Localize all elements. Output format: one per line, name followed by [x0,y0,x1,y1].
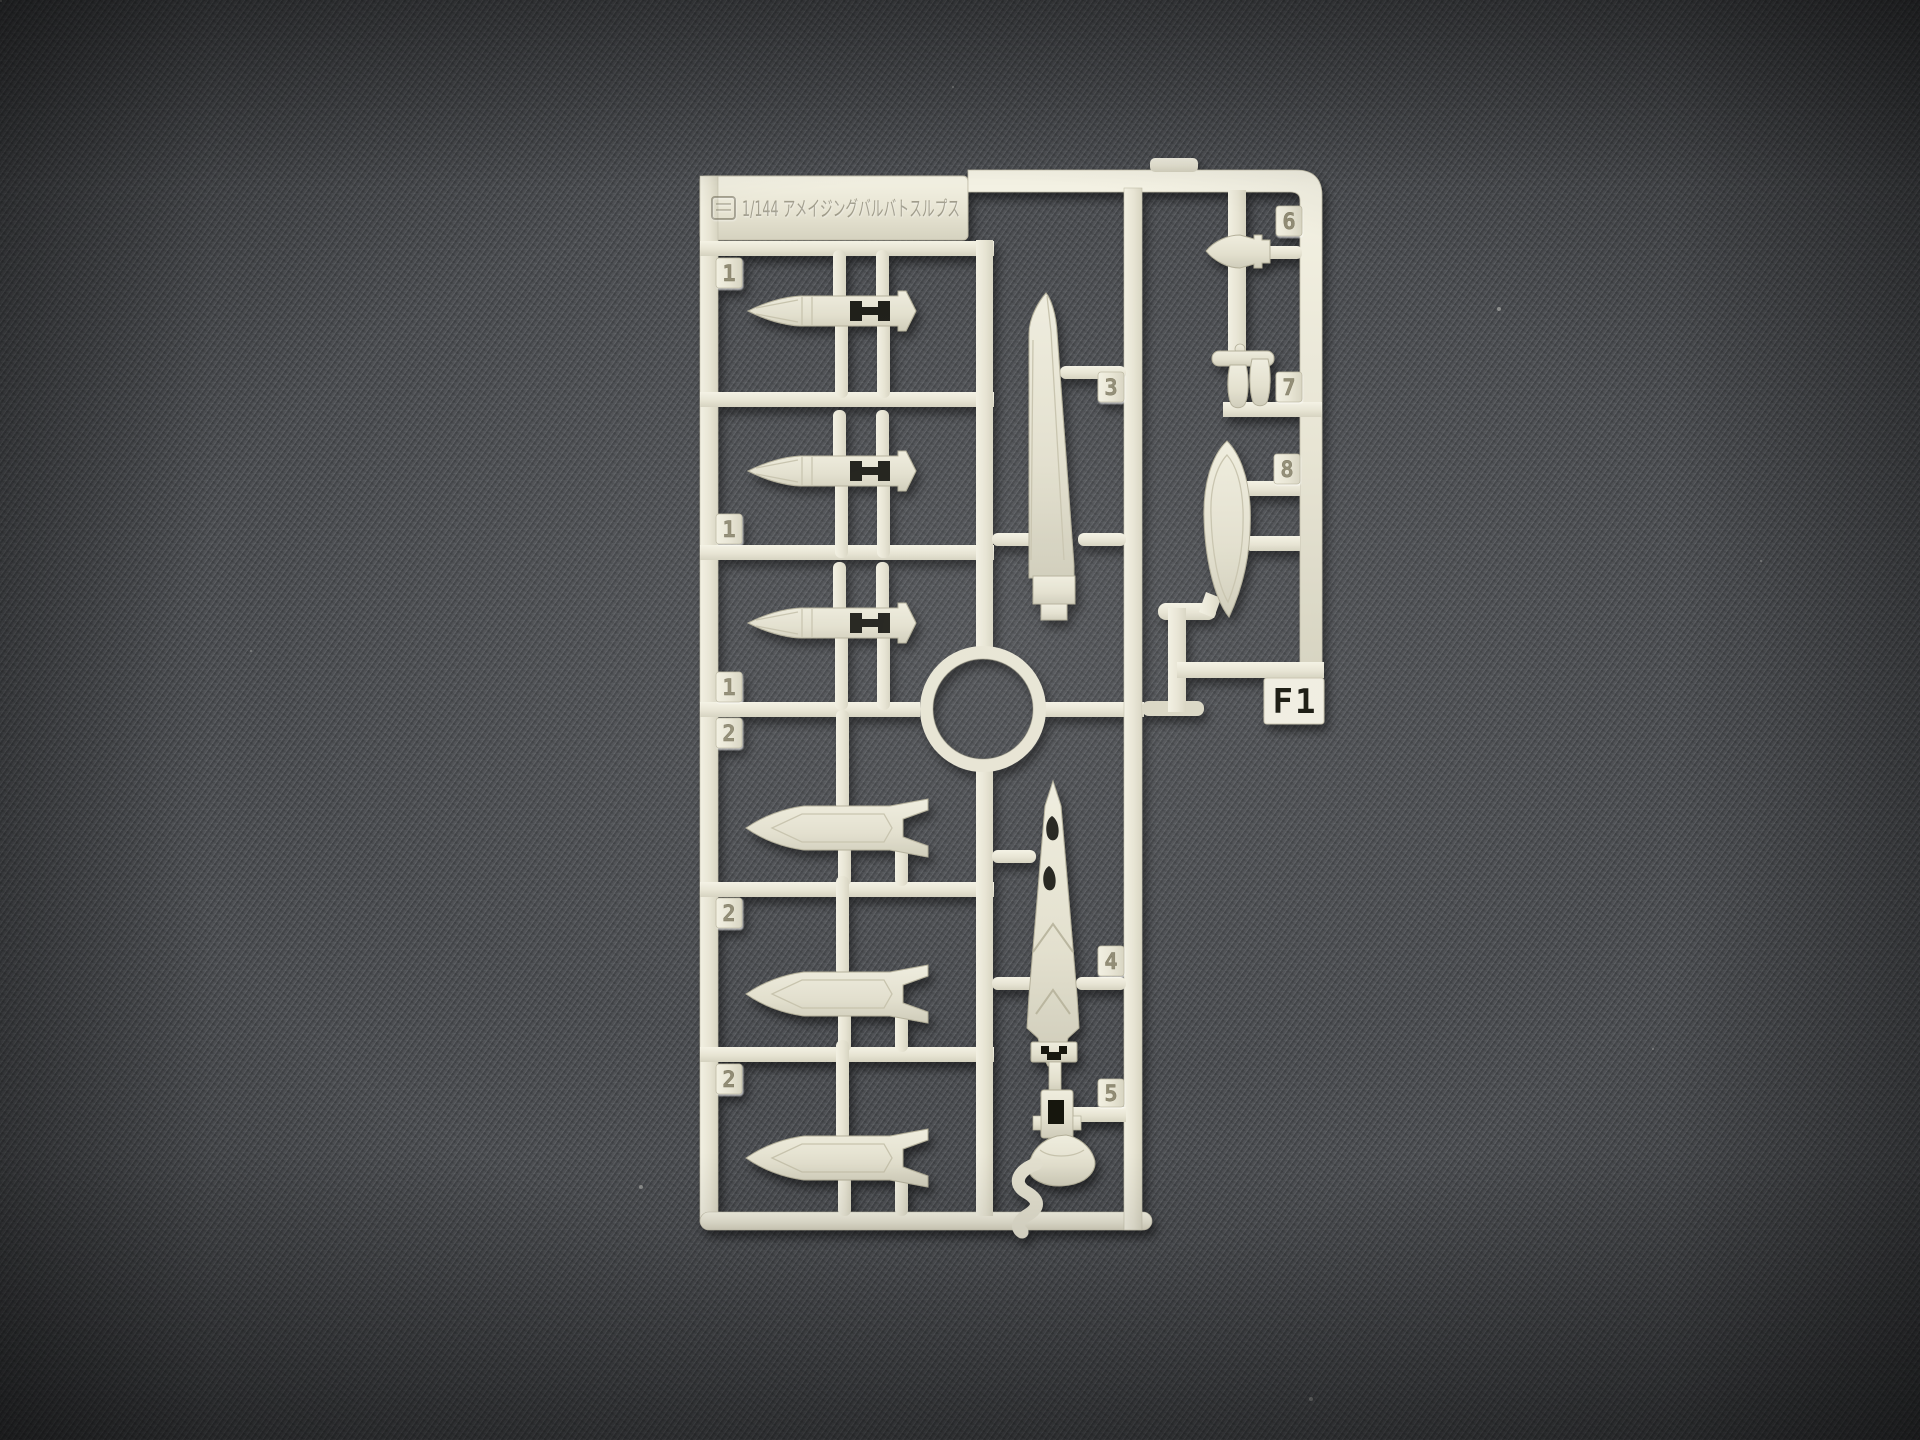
part-number-tab: 2 [716,718,742,748]
embossed-title: 1/144 アメイジングバルバトスルプス [712,197,960,221]
part-number: 7 [1282,376,1295,401]
gate [992,850,1036,863]
part-number-tab: 1 [716,258,742,288]
sprue-runner: 1/144 アメイジングバルバトスルプス 1 1 1 2 [0,0,1920,1440]
center-rail-lower [976,770,993,1216]
part-number: 3 [1104,376,1117,401]
part-6-bullet [1206,235,1270,268]
gate-letter-tab: F1 [1264,678,1324,724]
part-1-missile [748,250,916,398]
top-rail-nub [1150,158,1198,172]
part-number-tab: 4 [1098,946,1124,976]
part-1-missile [748,562,916,710]
part-number: 4 [1104,950,1117,975]
gate-letter-text: F1 [1273,682,1318,722]
part-number-tab: 6 [1276,206,1302,236]
left-rail [700,176,718,1222]
center-rail-upper [976,240,993,650]
gate [1078,533,1126,546]
part-number: 1 [722,676,735,701]
photo-model-kit-runner: 1/144 アメイジングバルバトスルプス 1 1 1 2 [0,0,1920,1440]
part-7-vent [1212,344,1274,408]
part-number: 8 [1280,458,1293,483]
mid-right-rail [1124,188,1142,1230]
part-5-pommel [1028,1090,1094,1186]
part-number: 1 [722,262,735,287]
part-number: 6 [1282,210,1295,235]
part-number: 2 [722,1068,735,1093]
part-number: 1 [722,518,735,543]
part-2-torpedo [746,1040,928,1216]
part-number-tab: 2 [716,1064,742,1094]
bottom-rail [700,1212,1152,1230]
part-3-blade [1029,293,1075,620]
part-number-tab: 2 [716,898,742,928]
ring-inner-edge [933,659,1033,759]
gate [1228,190,1246,237]
part-number: 2 [722,722,735,747]
molded-parts [746,235,1274,1232]
jog-rail [1168,608,1186,712]
part-4-sword [1027,781,1079,1092]
part-8-fin [1204,441,1250,617]
sprue-title-text: 1/144 アメイジングバルバトスルプス [742,197,960,221]
part-number-tab: 3 [1098,372,1124,402]
part-2-torpedo [746,710,928,886]
part-number-tab: 1 [716,514,742,544]
part-2-torpedo [746,876,928,1052]
part-number-tab: 8 [1274,454,1300,484]
part-number-tab: 5 [1098,1079,1124,1107]
part-number: 5 [1104,1082,1117,1107]
gate-branch-rail [1177,662,1324,678]
part-1-missile [748,410,916,558]
gate [1076,977,1126,990]
gate [1228,266,1246,356]
part-number-tab: 7 [1276,372,1302,402]
ring-runner [927,653,1040,766]
gate [992,533,1034,546]
part-number-tab: 1 [716,672,742,702]
row-rail [700,241,994,256]
part-number: 2 [722,902,735,927]
